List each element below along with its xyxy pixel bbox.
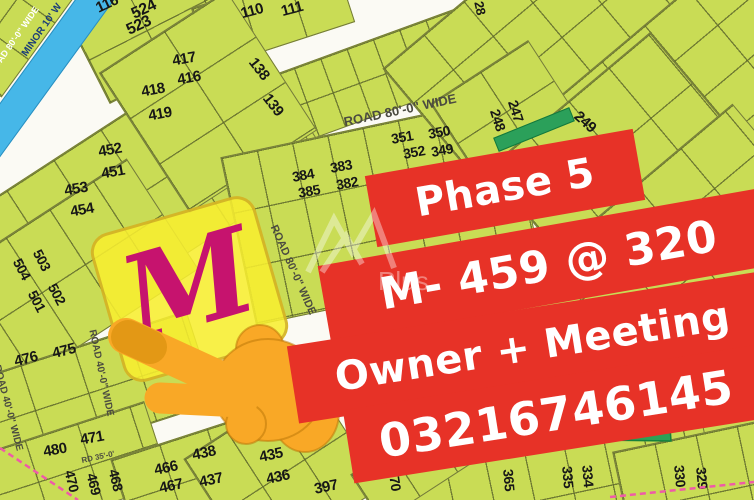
plot-number-label: 329	[693, 466, 711, 489]
plot-number-label: 334	[579, 464, 597, 487]
agency-logo-letter: M	[109, 210, 267, 359]
plot-number-label: 365	[500, 468, 518, 491]
plot-number-label: 335	[559, 465, 577, 488]
plot-number-label: 330	[671, 464, 689, 487]
map-canvas: GREEN 2.5 K 1165245231101112841741641841…	[0, 0, 754, 500]
